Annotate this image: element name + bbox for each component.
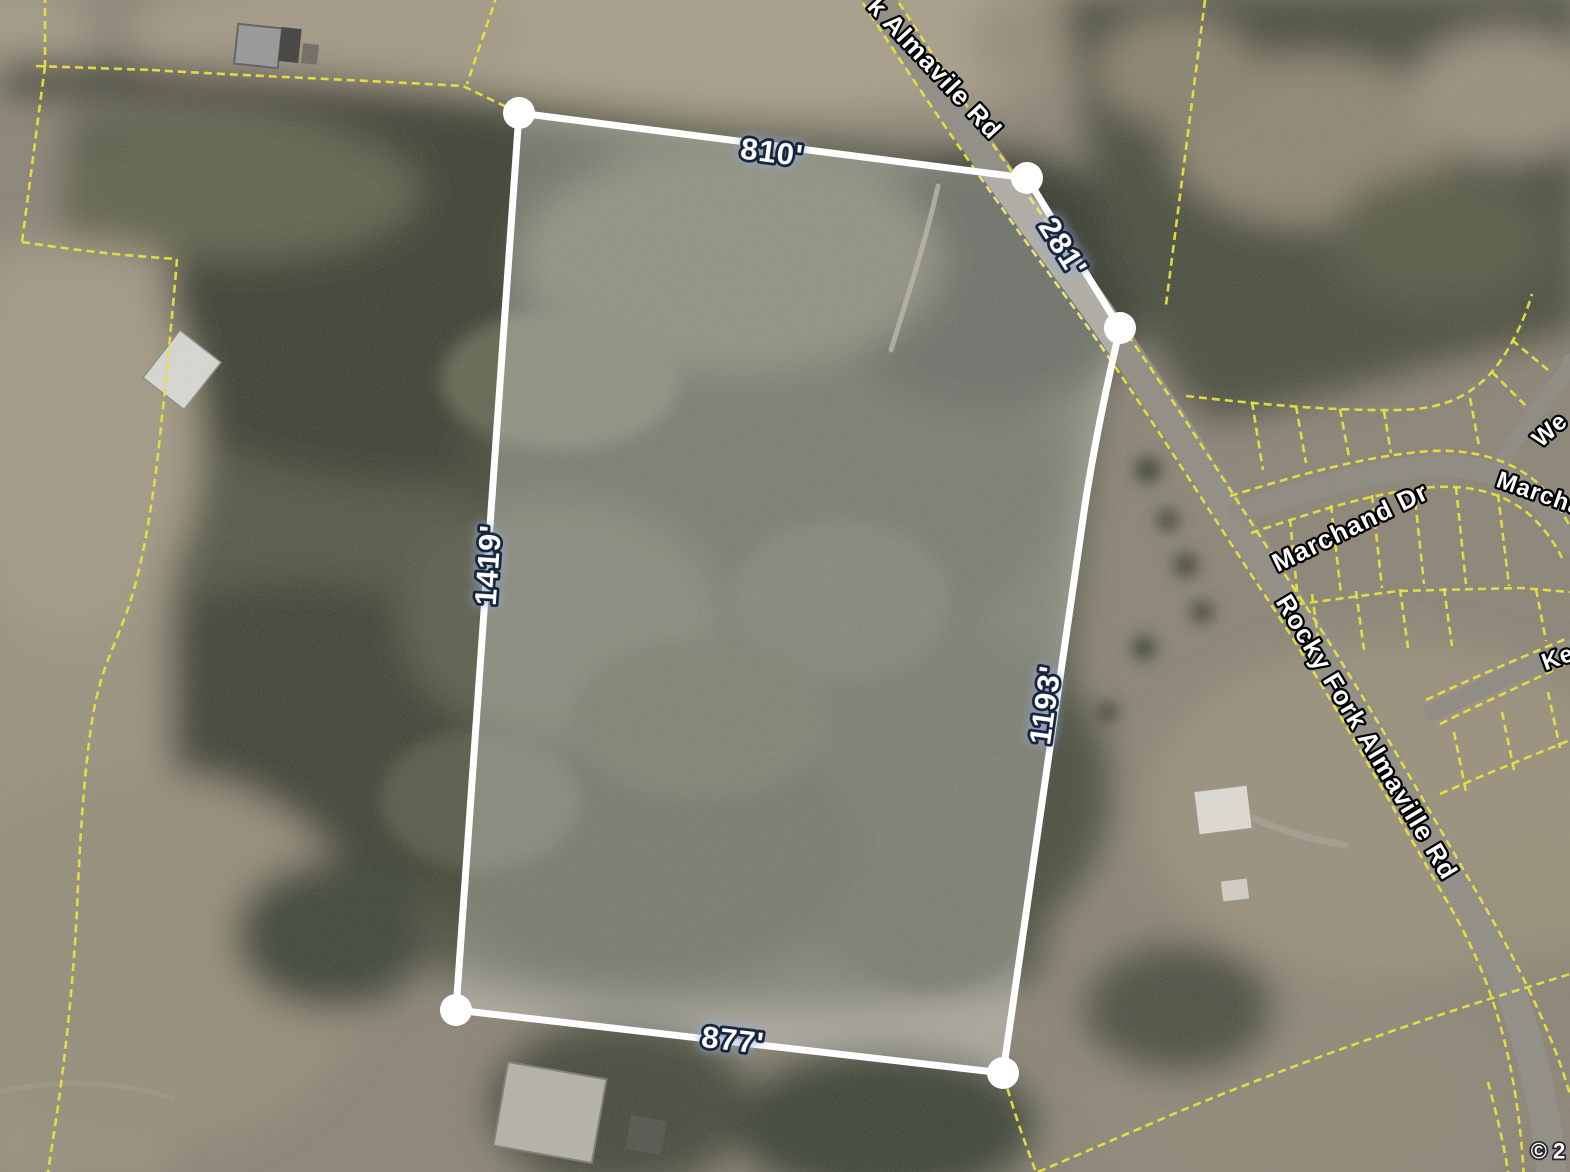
map-attribution: © 2 <box>1531 1139 1566 1164</box>
parcel-vertex[interactable] <box>503 97 535 129</box>
parcel-vertex[interactable] <box>440 994 472 1026</box>
parcel-vertex[interactable] <box>1011 162 1043 194</box>
dimension-label-south: 877' <box>700 1019 767 1061</box>
parcel-vertex[interactable] <box>1104 312 1136 344</box>
dimension-label-west: 1419' <box>468 523 509 607</box>
parcel-vertex[interactable] <box>987 1057 1019 1089</box>
aerial-map[interactable]: 810' 281' 1419' 1193' 877' k Almavile Rd… <box>0 0 1570 1172</box>
map-viewport[interactable]: 810' 281' 1419' 1193' 877' k Almavile Rd… <box>0 0 1570 1172</box>
